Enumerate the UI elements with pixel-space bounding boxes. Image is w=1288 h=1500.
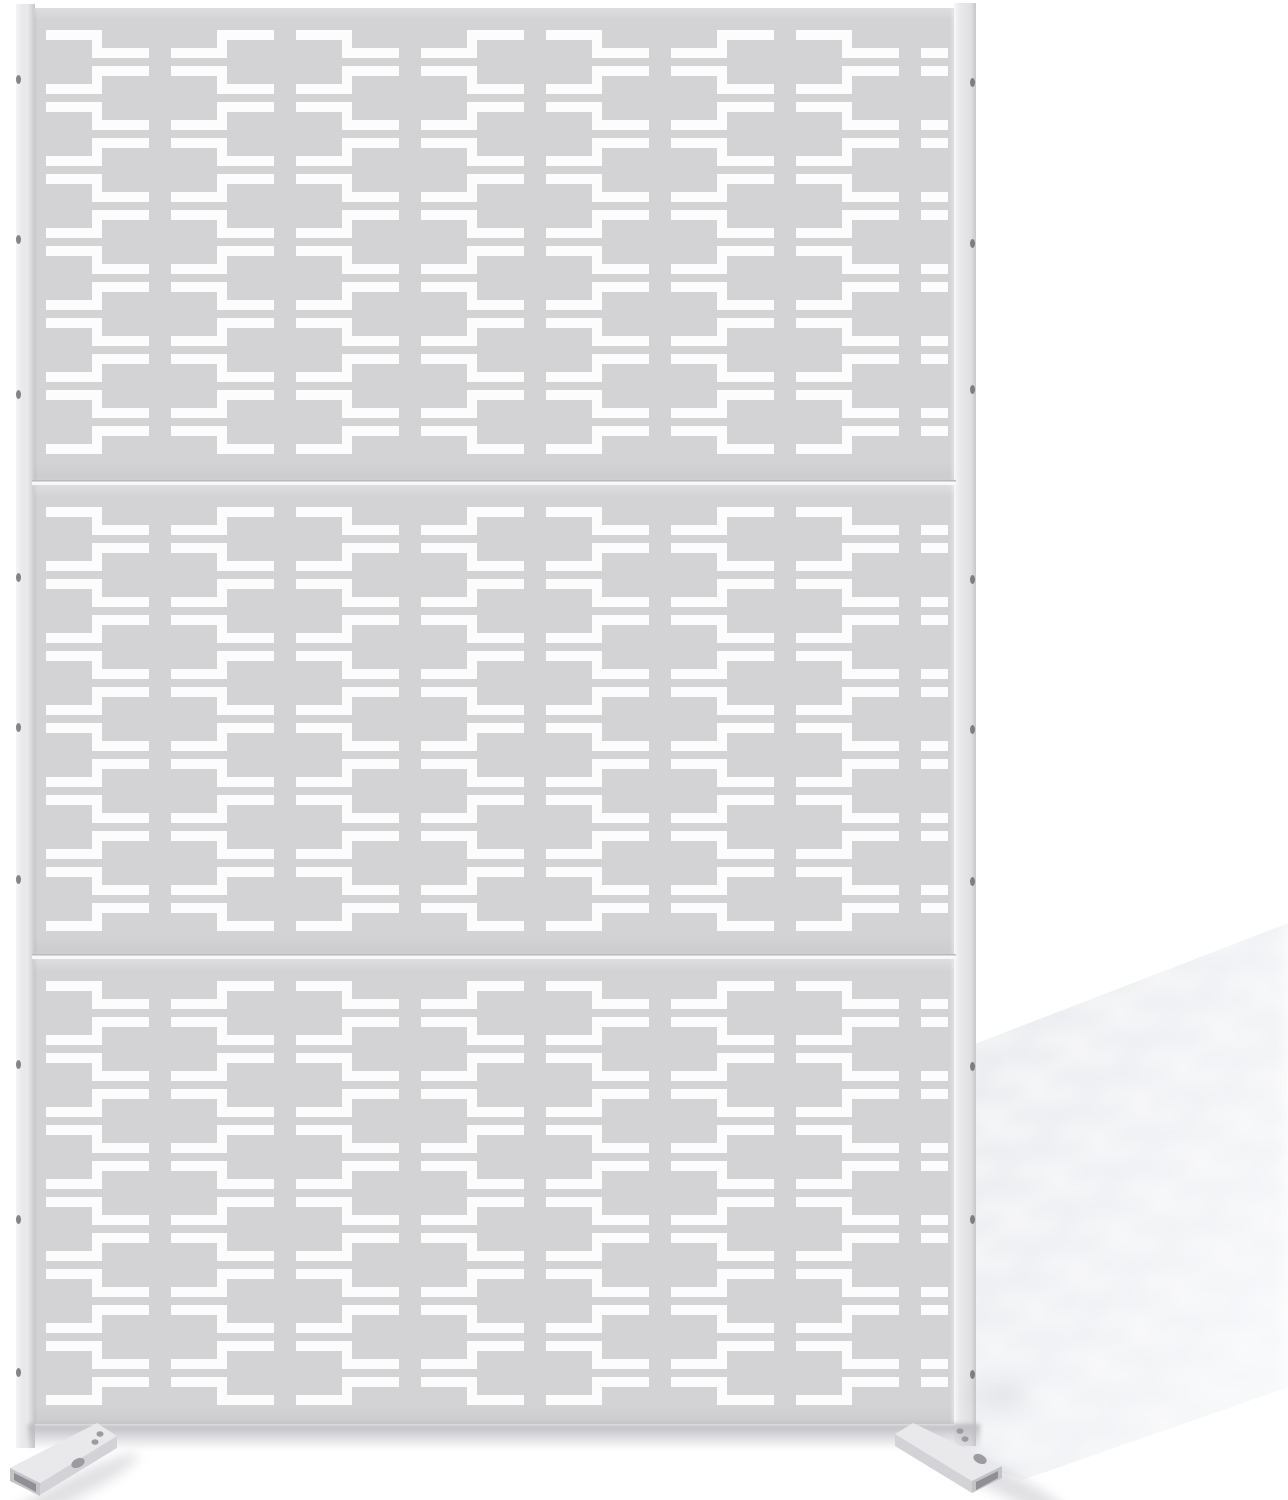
right-foot-screw-hole xyxy=(962,1436,969,1442)
left-foot-screw-hole xyxy=(92,1439,99,1445)
left-foot-screw-hole xyxy=(97,1431,104,1437)
product-photo: Product photo of a white freestanding la… xyxy=(0,0,1288,1500)
right-foot-screw-hole xyxy=(957,1428,964,1434)
support-feet xyxy=(0,0,1288,1500)
right-foot xyxy=(895,1423,1002,1493)
left-foot xyxy=(10,1423,117,1496)
